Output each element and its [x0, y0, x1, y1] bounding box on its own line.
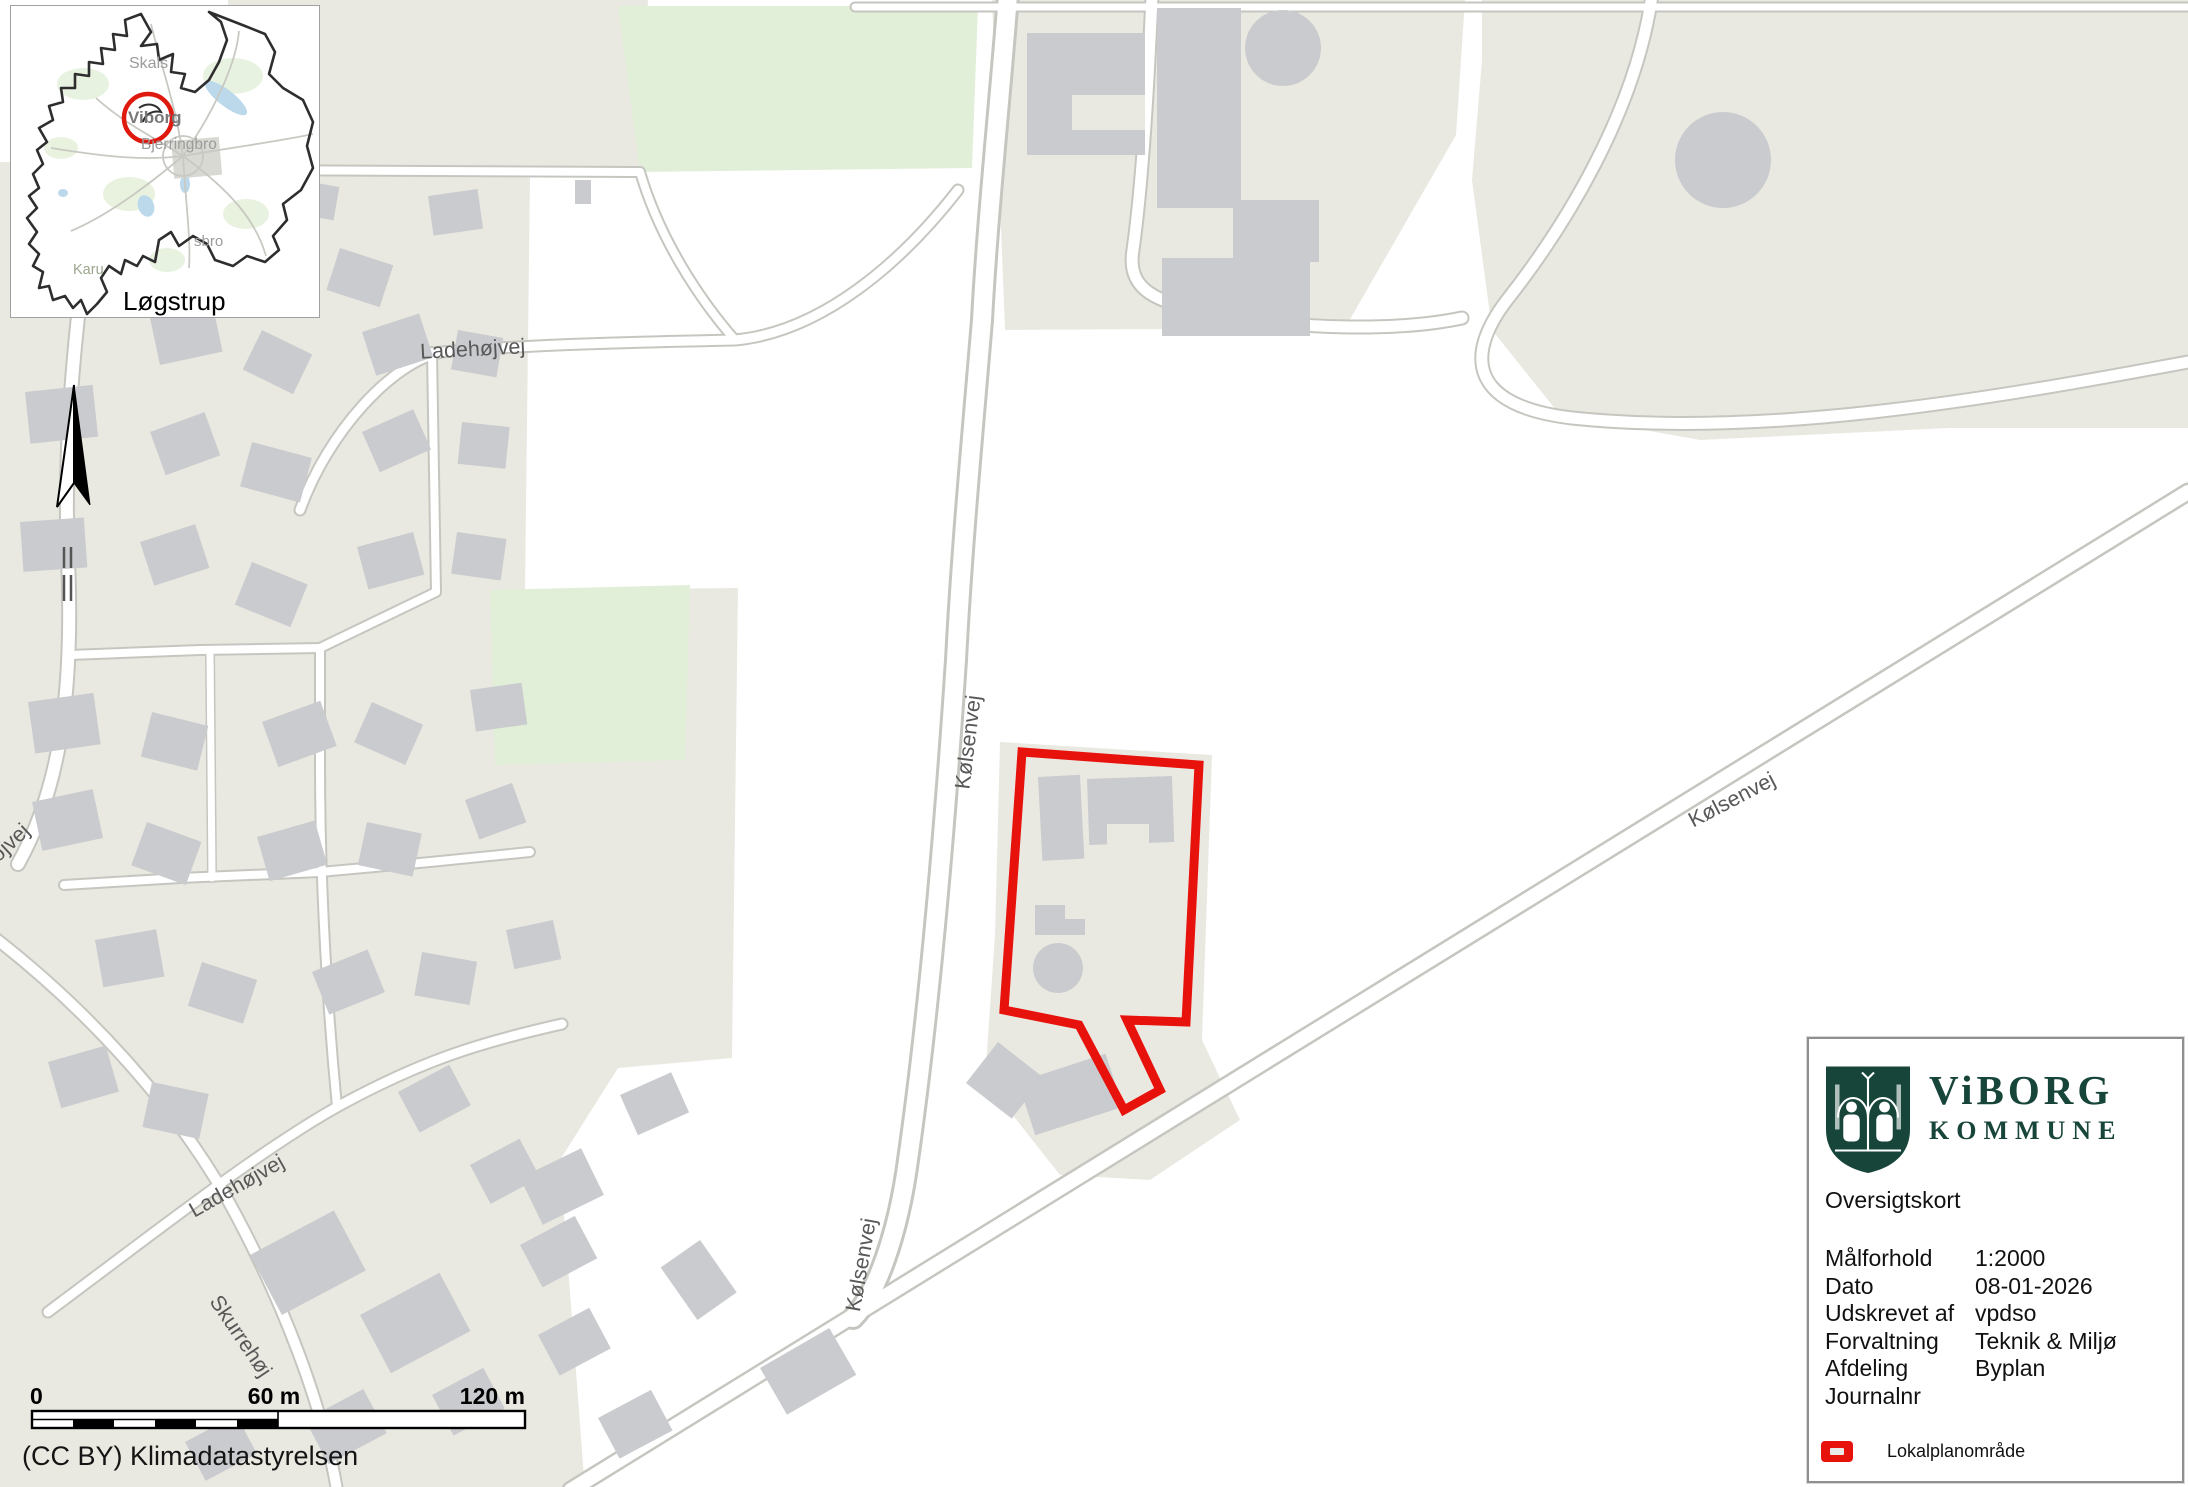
map-metadata: Målforhold 1:2000 Dato 08-01-2026 Udskre… [1825, 1245, 2117, 1410]
meta-value: 1:2000 [1975, 1245, 2045, 1272]
brand-wordmark: ViBORG KOMMUNE [1929, 1069, 2122, 1146]
inset-town-label: Løgstrup [123, 286, 226, 316]
meta-row-afdeling: Afdeling Byplan [1825, 1355, 2117, 1383]
inset-label-karup-partial: Karu [73, 262, 104, 278]
meta-label: Afdeling [1825, 1355, 1975, 1382]
viborg-coat-of-arms [1823, 1063, 1913, 1175]
meta-value: vpdso [1975, 1300, 2036, 1327]
meta-label: Journalnr [1825, 1383, 1975, 1410]
meta-value: Byplan [1975, 1355, 2045, 1382]
meta-label: Udskrevet af [1825, 1300, 1975, 1327]
meta-value: 08-01-2026 [1975, 1273, 2093, 1300]
scale-tick-120: 120 m [460, 1386, 525, 1409]
scale-tick-60: 60 m [248, 1386, 300, 1409]
legend-entry-lokalplanomrade: Lokalplanområde [1819, 1441, 2025, 1462]
inset-overview-map: Skals Viborg Bjerringbro sbro Karu Løgst… [10, 5, 320, 318]
map-title: Oversigtskort [1825, 1187, 1960, 1214]
meta-label: Dato [1825, 1273, 1975, 1300]
meta-label: Målforhold [1825, 1245, 1975, 1272]
inset-label-sbro-partial: sbro [194, 233, 223, 250]
inset-label-skals: Skals [129, 55, 168, 72]
scale-bar: 0 60 m 120 m [28, 1386, 538, 1444]
meta-value: Teknik & Miljø [1975, 1328, 2117, 1355]
meta-label: Forvaltning [1825, 1328, 1975, 1355]
inset-green-areas [44, 58, 269, 272]
legend-entry-label: Lokalplanområde [1887, 1441, 2025, 1462]
meta-row-forvaltning: Forvaltning Teknik & Miljø [1825, 1328, 2117, 1356]
meta-row-journalnr: Journalnr [1825, 1383, 2117, 1411]
map-print-page: Ladehøjvej Ladehøjvej Skurrehøj Kølsenve… [0, 0, 2188, 1487]
meta-row-malforhold: Målforhold 1:2000 [1825, 1245, 2117, 1273]
scale-tick-0: 0 [30, 1386, 43, 1409]
inset-label-viborg: Viborg [128, 108, 182, 127]
brand-name: ViBORG [1929, 1069, 2122, 1112]
brand-subname: KOMMUNE [1929, 1116, 2122, 1146]
meta-row-udskrevet-af: Udskrevet af vpdso [1825, 1300, 2117, 1328]
inset-label-bjerringbro: Bjerringbro [141, 136, 217, 153]
meta-row-dato: Dato 08-01-2026 [1825, 1273, 2117, 1301]
lokalplan-swatch-icon [1821, 1441, 1853, 1462]
legend-box: ViBORG KOMMUNE Oversigtskort Målforhold … [1807, 1037, 2184, 1483]
attribution-text: (CC BY) Klimadatastyrelsen [22, 1441, 358, 1472]
